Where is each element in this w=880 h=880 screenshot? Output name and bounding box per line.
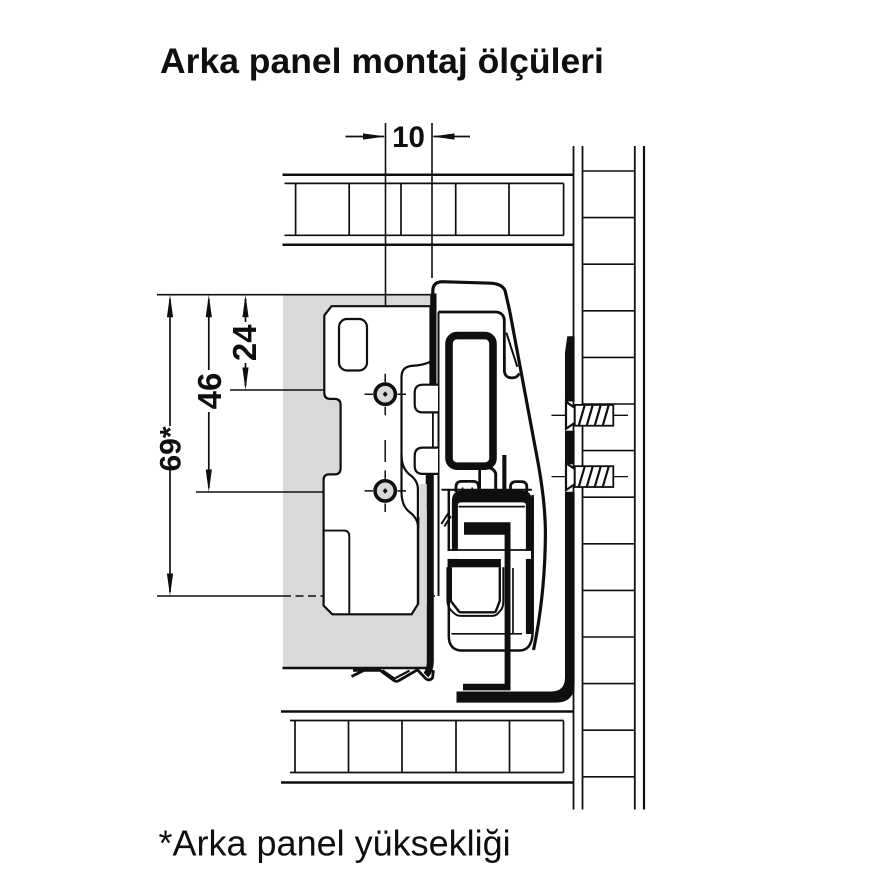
svg-text:Arka panel montaj ölçüleri: Arka panel montaj ölçüleri	[160, 41, 604, 81]
svg-text:46: 46	[191, 373, 228, 410]
svg-text:69*: 69*	[155, 426, 188, 471]
svg-text:10: 10	[392, 121, 425, 154]
svg-text:*Arka panel yüksekliği: *Arka panel yüksekliği	[159, 823, 511, 864]
svg-text:24: 24	[226, 324, 263, 361]
